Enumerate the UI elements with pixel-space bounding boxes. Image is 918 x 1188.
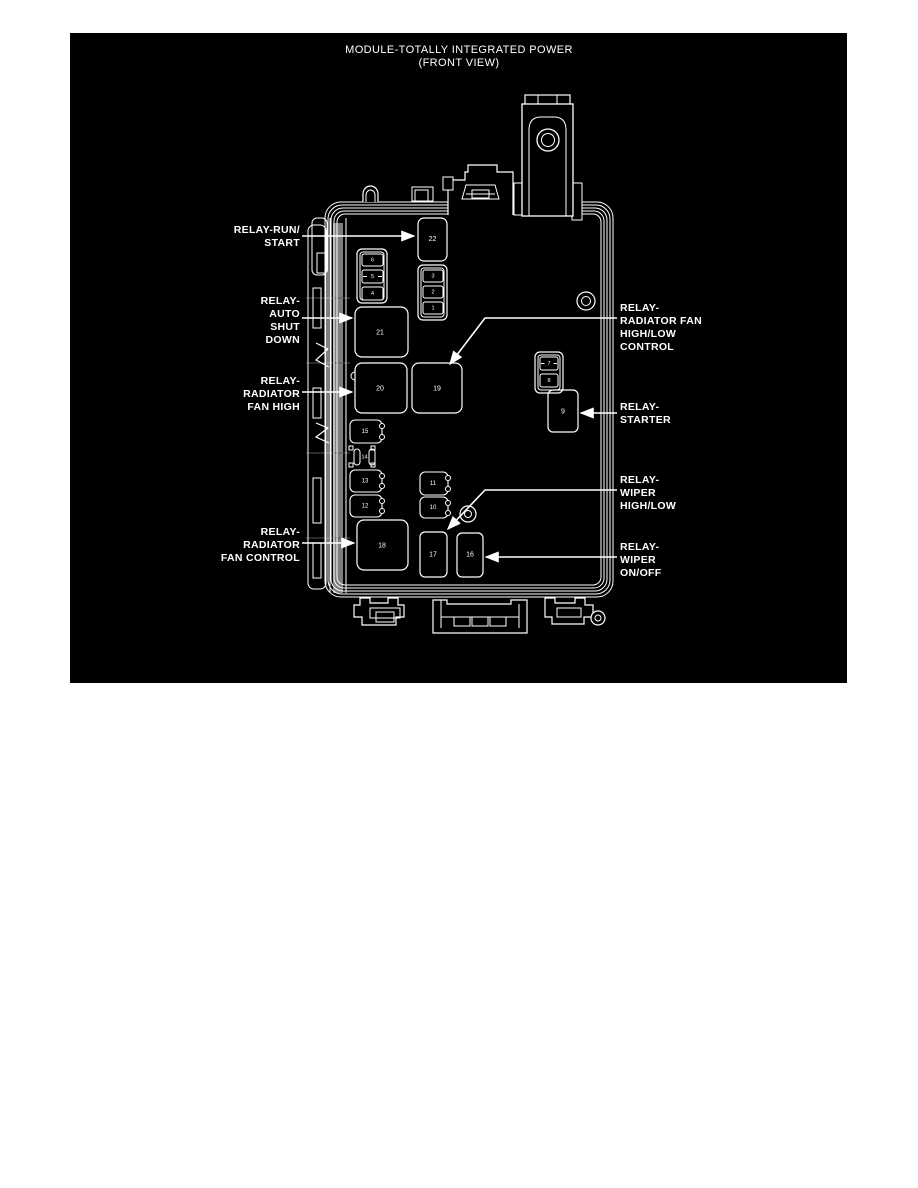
top-small-connector-tab [412, 187, 433, 201]
relay-cavity-17: 17 [420, 532, 447, 577]
diagram-canvas: MODULE-TOTALLY INTEGRATED POWER (FRONT V… [70, 33, 847, 683]
bolt-boss-top-right [577, 292, 595, 310]
relay-cavity-16: 16 [457, 533, 483, 577]
relay-21-number: 21 [376, 330, 384, 337]
bottom-center-connector [433, 600, 527, 633]
callout-text: STARTER [620, 414, 671, 426]
micro-relay-15-number: 15 [362, 429, 369, 435]
callout-relay-auto-shut-down: RELAY- AUTO SHUT DOWN [261, 295, 301, 346]
callout-text: RELAY- [620, 474, 660, 486]
micro-relay-cavity-12: 12 [350, 495, 385, 517]
fuse-2-number: 2 [431, 290, 434, 296]
relay-17-number: 17 [429, 552, 437, 559]
callout-text: RELAY- [261, 295, 301, 307]
relay-cavity-19: 19 [412, 363, 462, 413]
callout-relay-wiper-on-off: RELAY- WIPER ON/OFF [620, 541, 662, 579]
fuse-strip-7-8: 7 8 [535, 352, 563, 393]
callout-text: HIGH/LOW [620, 328, 676, 340]
diagram-title-line2: (FRONT VIEW) [419, 57, 500, 69]
callout-text: RELAY- [620, 302, 660, 314]
callout-text: AUTO [269, 308, 300, 320]
fuse-14-holder: 14 [349, 446, 375, 467]
callout-text: WIPER [620, 487, 656, 499]
micro-relay-cavity-11: 11 [420, 472, 451, 495]
callout-text: HIGH/LOW [620, 500, 676, 512]
tipm-front-view-diagram: MODULE-TOTALLY INTEGRATED POWER (FRONT V… [70, 33, 847, 683]
top-center-connector [443, 165, 513, 215]
callout-relay-radiator-fan-high: RELAY- RADIATOR FAN HIGH [243, 375, 300, 413]
callout-text: RADIATOR [243, 539, 300, 551]
callout-text: FAN CONTROL [221, 552, 300, 564]
callout-text: RELAY- [261, 375, 301, 387]
relay-cavity-20: 20 [351, 363, 407, 413]
fuse-3-number: 3 [431, 274, 434, 280]
mounting-bracket-top-right [514, 95, 582, 220]
relay-19-number: 19 [433, 386, 441, 393]
fuse-14-number: 14 [361, 455, 367, 461]
relay-cavity-21: 21 [355, 307, 408, 357]
relay-16-number: 16 [466, 552, 474, 559]
relay-cavity-18: 18 [357, 520, 408, 570]
micro-relay-cavity-15: 15 [350, 420, 385, 443]
fuse-7-number: 7 [547, 361, 550, 367]
callout-text: WIPER [620, 554, 656, 566]
callout-relay-radiator-fan-control: RELAY- RADIATOR FAN CONTROL [221, 526, 300, 564]
micro-relay-cavity-10: 10 [420, 497, 451, 518]
micro-relay-cavity-13: 13 [350, 470, 385, 492]
fuse-5-number: 5 [371, 274, 374, 280]
fuse-strip-3-2-1: 3 2 1 [418, 265, 447, 320]
micro-relay-12-number: 12 [362, 504, 369, 510]
callout-text: ON/OFF [620, 567, 662, 579]
callout-text: START [264, 237, 300, 249]
arrow-wiper-high-low [448, 490, 617, 529]
diagram-title-line1: MODULE-TOTALLY INTEGRATED POWER [345, 44, 573, 56]
callout-text: RELAY- [620, 401, 660, 413]
callout-text: RADIATOR FAN [620, 315, 702, 327]
micro-relay-13-number: 13 [362, 479, 369, 485]
bottom-left-connector [354, 598, 404, 625]
callout-text: RELAY-RUN/ [234, 224, 300, 236]
micro-relay-10-number: 10 [430, 505, 437, 511]
callout-text: SHUT [270, 321, 300, 333]
fuse-8-number: 8 [547, 378, 550, 384]
callout-relay-starter: RELAY- STARTER [620, 401, 671, 426]
fuse-4-number: 4 [371, 291, 374, 297]
callout-text: RADIATOR [243, 388, 300, 400]
manual-page: MODULE-TOTALLY INTEGRATED POWER (FRONT V… [0, 0, 918, 1188]
callout-text: RELAY- [620, 541, 660, 553]
callout-text: FAN HIGH [247, 401, 300, 413]
fuse-6-number: 6 [371, 258, 374, 264]
callout-relay-radiator-fan-high-low-control: RELAY- RADIATOR FAN HIGH/LOW CONTROL [620, 302, 702, 353]
relay-22-number: 22 [429, 236, 437, 243]
fuse-strip-6-5-4: 6 5 4 [357, 249, 387, 303]
top-oval-tab [363, 186, 378, 202]
fuse-1-number: 1 [431, 306, 434, 312]
callout-relay-wiper-high-low: RELAY- WIPER HIGH/LOW [620, 474, 676, 512]
relay-cavity-22: 22 [418, 218, 447, 261]
micro-relay-11-number: 11 [430, 481, 437, 487]
callout-text: DOWN [266, 334, 300, 346]
callout-text: CONTROL [620, 341, 674, 353]
bottom-right-connector [545, 598, 605, 625]
relay-cavity-9: 9 [548, 390, 578, 432]
arrow-radiator-fan-high-low-control [450, 318, 617, 364]
callout-relay-run-start: RELAY-RUN/ START [234, 224, 301, 249]
callout-text: RELAY- [261, 526, 301, 538]
relay-18-number: 18 [378, 543, 386, 550]
relay-20-number: 20 [376, 386, 384, 393]
relay-9-number: 9 [561, 409, 565, 416]
